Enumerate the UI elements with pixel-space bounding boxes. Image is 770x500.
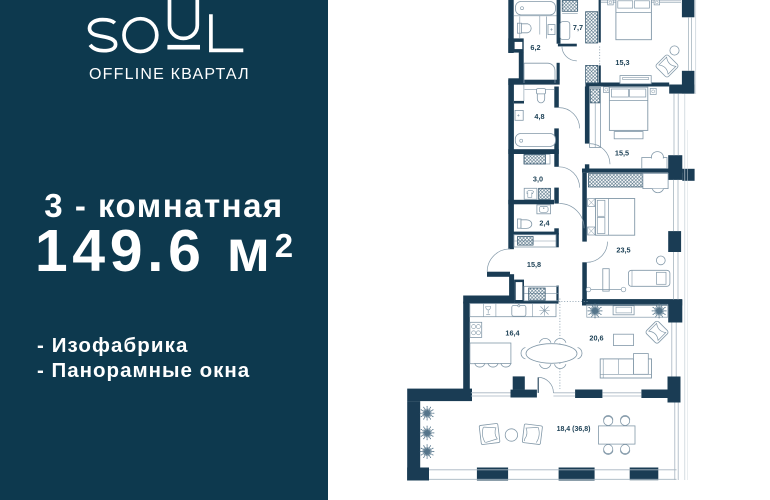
svg-text:18,4 (36,8): 18,4 (36,8) <box>557 426 591 433</box>
svg-text:7,7: 7,7 <box>573 23 583 32</box>
svg-text:3,0: 3,0 <box>533 175 543 184</box>
svg-text:2,4: 2,4 <box>539 219 550 228</box>
svg-text:23,5: 23,5 <box>616 246 630 255</box>
svg-text:15,3: 15,3 <box>615 58 629 67</box>
svg-text:16,4: 16,4 <box>505 329 520 338</box>
svg-text:4,8: 4,8 <box>534 112 544 121</box>
svg-text:20,6: 20,6 <box>589 334 603 343</box>
svg-text:15,8: 15,8 <box>527 260 541 269</box>
svg-text:15,5: 15,5 <box>615 149 629 158</box>
svg-text:6,2: 6,2 <box>530 43 540 52</box>
